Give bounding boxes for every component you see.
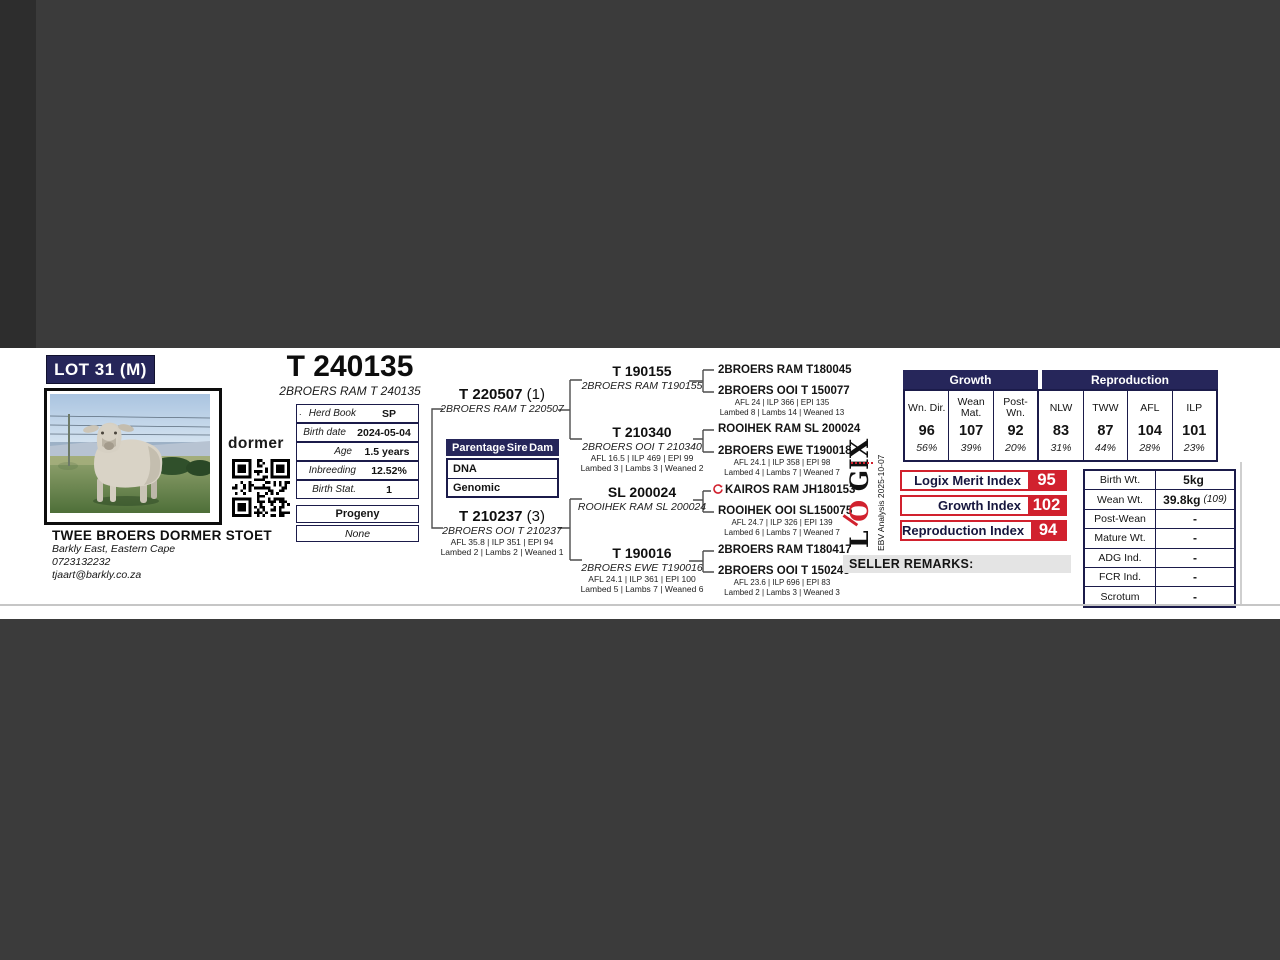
seller-remarks-bar: SELLER REMARKS: xyxy=(843,555,1071,573)
parentage-table: DNA Genomic xyxy=(446,458,559,498)
pedigree-gen3-entry: 2BROERS RAM T180417 xyxy=(718,544,856,557)
pedigree-gen2-entry: T 210340 2BROERS OOI T 210340 AFL 16.5 |… xyxy=(567,424,717,473)
detail-row-birth-stat: Birth Stat. 1 xyxy=(296,480,419,499)
growth-header: Growth xyxy=(903,370,1038,389)
pedigree-sire: T 220507 (1) 2BROERS RAM T 220507 xyxy=(427,386,577,416)
pdf-viewer-background: LOT 31 (M) xyxy=(0,0,1280,960)
detail-row-herd-book: . Herd Book SP xyxy=(296,404,419,423)
logix-logo: L O GIX xyxy=(845,463,877,548)
breeder-block: TWEE BROERS DORMER STOET Barkly East, Ea… xyxy=(52,528,332,582)
progeny-value: None xyxy=(296,525,419,542)
reproduction-index-badge: Reproduction Index 94 xyxy=(900,520,1067,541)
index-col-post-wn: Post- Wn. 92 20% xyxy=(994,391,1039,460)
sire-col-label: Sire xyxy=(507,442,528,454)
ebv-analysis-date: EBV Analysis 2025-10-07 xyxy=(876,456,888,551)
weight-row-post-wean: Post-Wean - xyxy=(1085,510,1234,529)
weights-table: Birth Wt. 5kg Wean Wt. 39.8kg(109) Post-… xyxy=(1083,469,1236,608)
pedigree-gen3-entry: 2BROERS EWE T190018 AFL 24.1 | ILP 358 |… xyxy=(718,445,856,477)
index-col-wn-dir: Wn. Dir. 96 56% xyxy=(905,391,949,460)
logix-merit-index-badge: Logix Merit Index 95 xyxy=(900,470,1067,491)
parentage-row-dna: DNA xyxy=(448,460,557,479)
page-bottom-rule xyxy=(0,604,1280,606)
weight-row-scrotum: Scrotum - xyxy=(1085,587,1234,605)
parentage-row-genomic: Genomic xyxy=(448,479,557,497)
pedigree-gen2-entry: T 190155 2BROERS RAM T190155 xyxy=(567,363,717,393)
detail-row-birth-date: Birth date 2024-05-04 xyxy=(296,423,419,442)
pedigree-gen3-entry: ROOIHEK OOI SL150075 AFL 24.7 | ILP 326 … xyxy=(718,505,856,537)
index-col-wean-mat: Wean Mat. 107 39% xyxy=(949,391,993,460)
index-col-tww: TWW 87 44% xyxy=(1084,391,1128,460)
reproduction-header: Reproduction xyxy=(1042,370,1218,389)
progeny-header: Progeny xyxy=(296,505,419,523)
breeder-location: Barkly East, Eastern Cape xyxy=(52,543,332,556)
genomic-tested-icon xyxy=(713,484,723,494)
page-edge-rule xyxy=(1240,462,1242,604)
ram-photo-illustration xyxy=(50,394,210,513)
viewer-left-strip xyxy=(0,0,36,348)
animal-id-title: T 240135 xyxy=(250,350,450,384)
dormer-logo: dormer xyxy=(228,435,292,453)
logix-tagline xyxy=(851,461,873,464)
stray-dot: . xyxy=(299,407,302,417)
pedigree-gen2-entry: SL 200024 ROOIHEK RAM SL 200024 xyxy=(567,484,717,514)
index-col-ilp: ILP 101 23% xyxy=(1173,391,1216,460)
weight-row-fcr: FCR Ind. - xyxy=(1085,568,1234,587)
detail-row-inbreeding: Inbreeding 12.52% xyxy=(296,461,419,480)
index-col-afl: AFL 104 28% xyxy=(1128,391,1172,460)
pedigree-dam: T 210237 (3) 2BROERS OOI T 210237 AFL 35… xyxy=(427,508,577,557)
logix-o-glyph: O xyxy=(845,491,874,530)
breeder-name: TWEE BROERS DORMER STOET xyxy=(52,528,332,543)
breeder-email[interactable]: tjaart@barkly.co.za xyxy=(52,569,332,582)
weight-row-birth: Birth Wt. 5kg xyxy=(1085,471,1234,490)
ebv-index-table: Wn. Dir. 96 56% Wean Mat. 107 39% Post- … xyxy=(903,389,1218,462)
index-col-nlw: NLW 83 31% xyxy=(1039,391,1083,460)
parentage-col-label: Parentage xyxy=(452,442,505,454)
weight-row-mature: Mature Wt. - xyxy=(1085,529,1234,548)
catalog-page: LOT 31 (M) xyxy=(0,348,1280,619)
weight-row-adg: ADG Ind. - xyxy=(1085,549,1234,568)
weight-row-wean: Wean Wt. 39.8kg(109) xyxy=(1085,490,1234,509)
ram-photo xyxy=(44,388,222,525)
pedigree-gen3-entry: ROOIHEK RAM SL 200024 xyxy=(718,423,856,436)
qr-code xyxy=(232,459,290,517)
dam-col-label: Dam xyxy=(529,442,553,454)
pedigree-gen3-entry: 2BROERS OOI T 150243 AFL 23.6 | ILP 696 … xyxy=(718,565,856,597)
pedigree-gen3-entry: KAIROS RAM JH180153 xyxy=(713,484,851,497)
lot-badge: LOT 31 (M) xyxy=(46,355,155,384)
detail-row-age: Age 1.5 years xyxy=(296,442,419,461)
breeder-phone: 0723132232 xyxy=(52,556,332,569)
parentage-header: Parentage Sire Dam xyxy=(446,439,559,456)
pedigree-gen2-entry: T 190016 2BROERS EWE T190016 AFL 24.1 | … xyxy=(567,545,717,594)
pedigree-gen3-entry: 2BROERS RAM T180045 xyxy=(718,364,856,377)
growth-index-badge: Growth Index 102 xyxy=(900,495,1067,516)
animal-name-subtitle: 2BROERS RAM T 240135 xyxy=(250,384,450,398)
pedigree-gen3-entry: 2BROERS OOI T 150077 AFL 24 | ILP 366 | … xyxy=(718,385,856,417)
